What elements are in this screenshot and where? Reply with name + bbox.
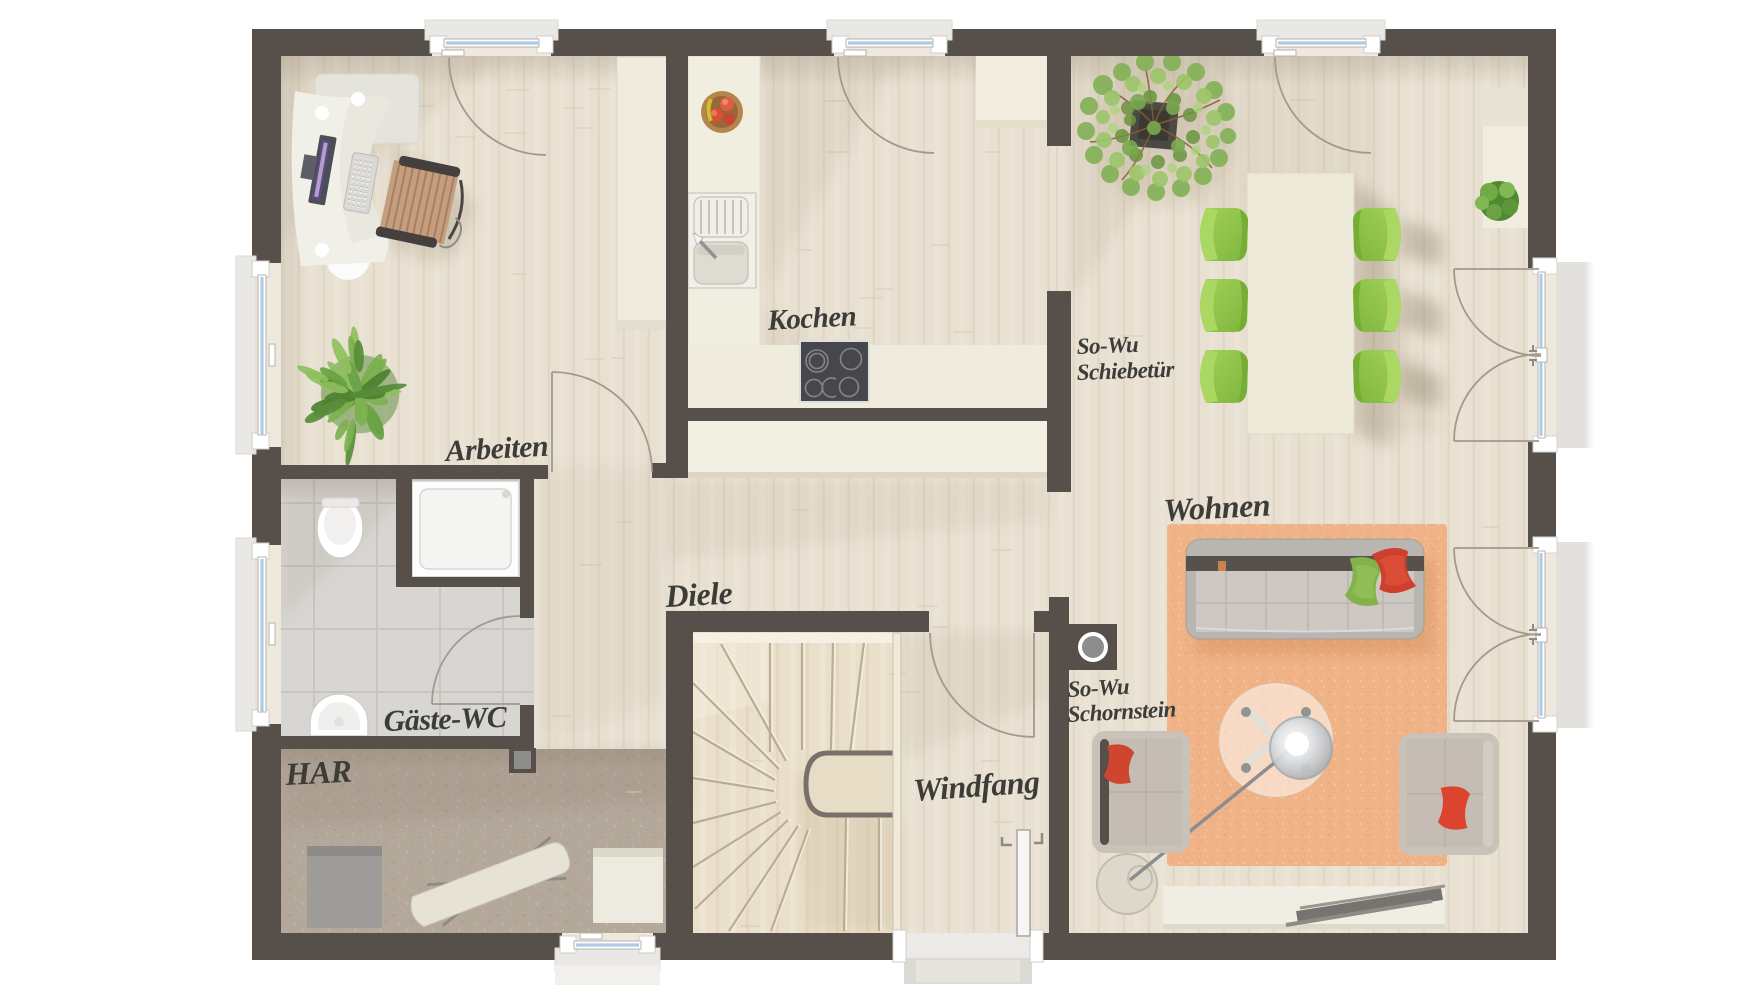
svg-text:HAR: HAR xyxy=(283,753,352,792)
svg-text:Diele: Diele xyxy=(663,575,733,615)
svg-text:Wohnen: Wohnen xyxy=(1162,486,1270,528)
svg-text:Gäste-WC: Gäste-WC xyxy=(383,701,508,738)
svg-text:So-Wu: So-Wu xyxy=(1067,674,1130,702)
svg-text:Arbeiten: Arbeiten xyxy=(443,430,549,468)
svg-text:So-Wu: So-Wu xyxy=(1076,332,1139,359)
svg-text:Schiebetür: Schiebetür xyxy=(1076,357,1176,385)
svg-text:Kochen: Kochen xyxy=(766,300,857,337)
